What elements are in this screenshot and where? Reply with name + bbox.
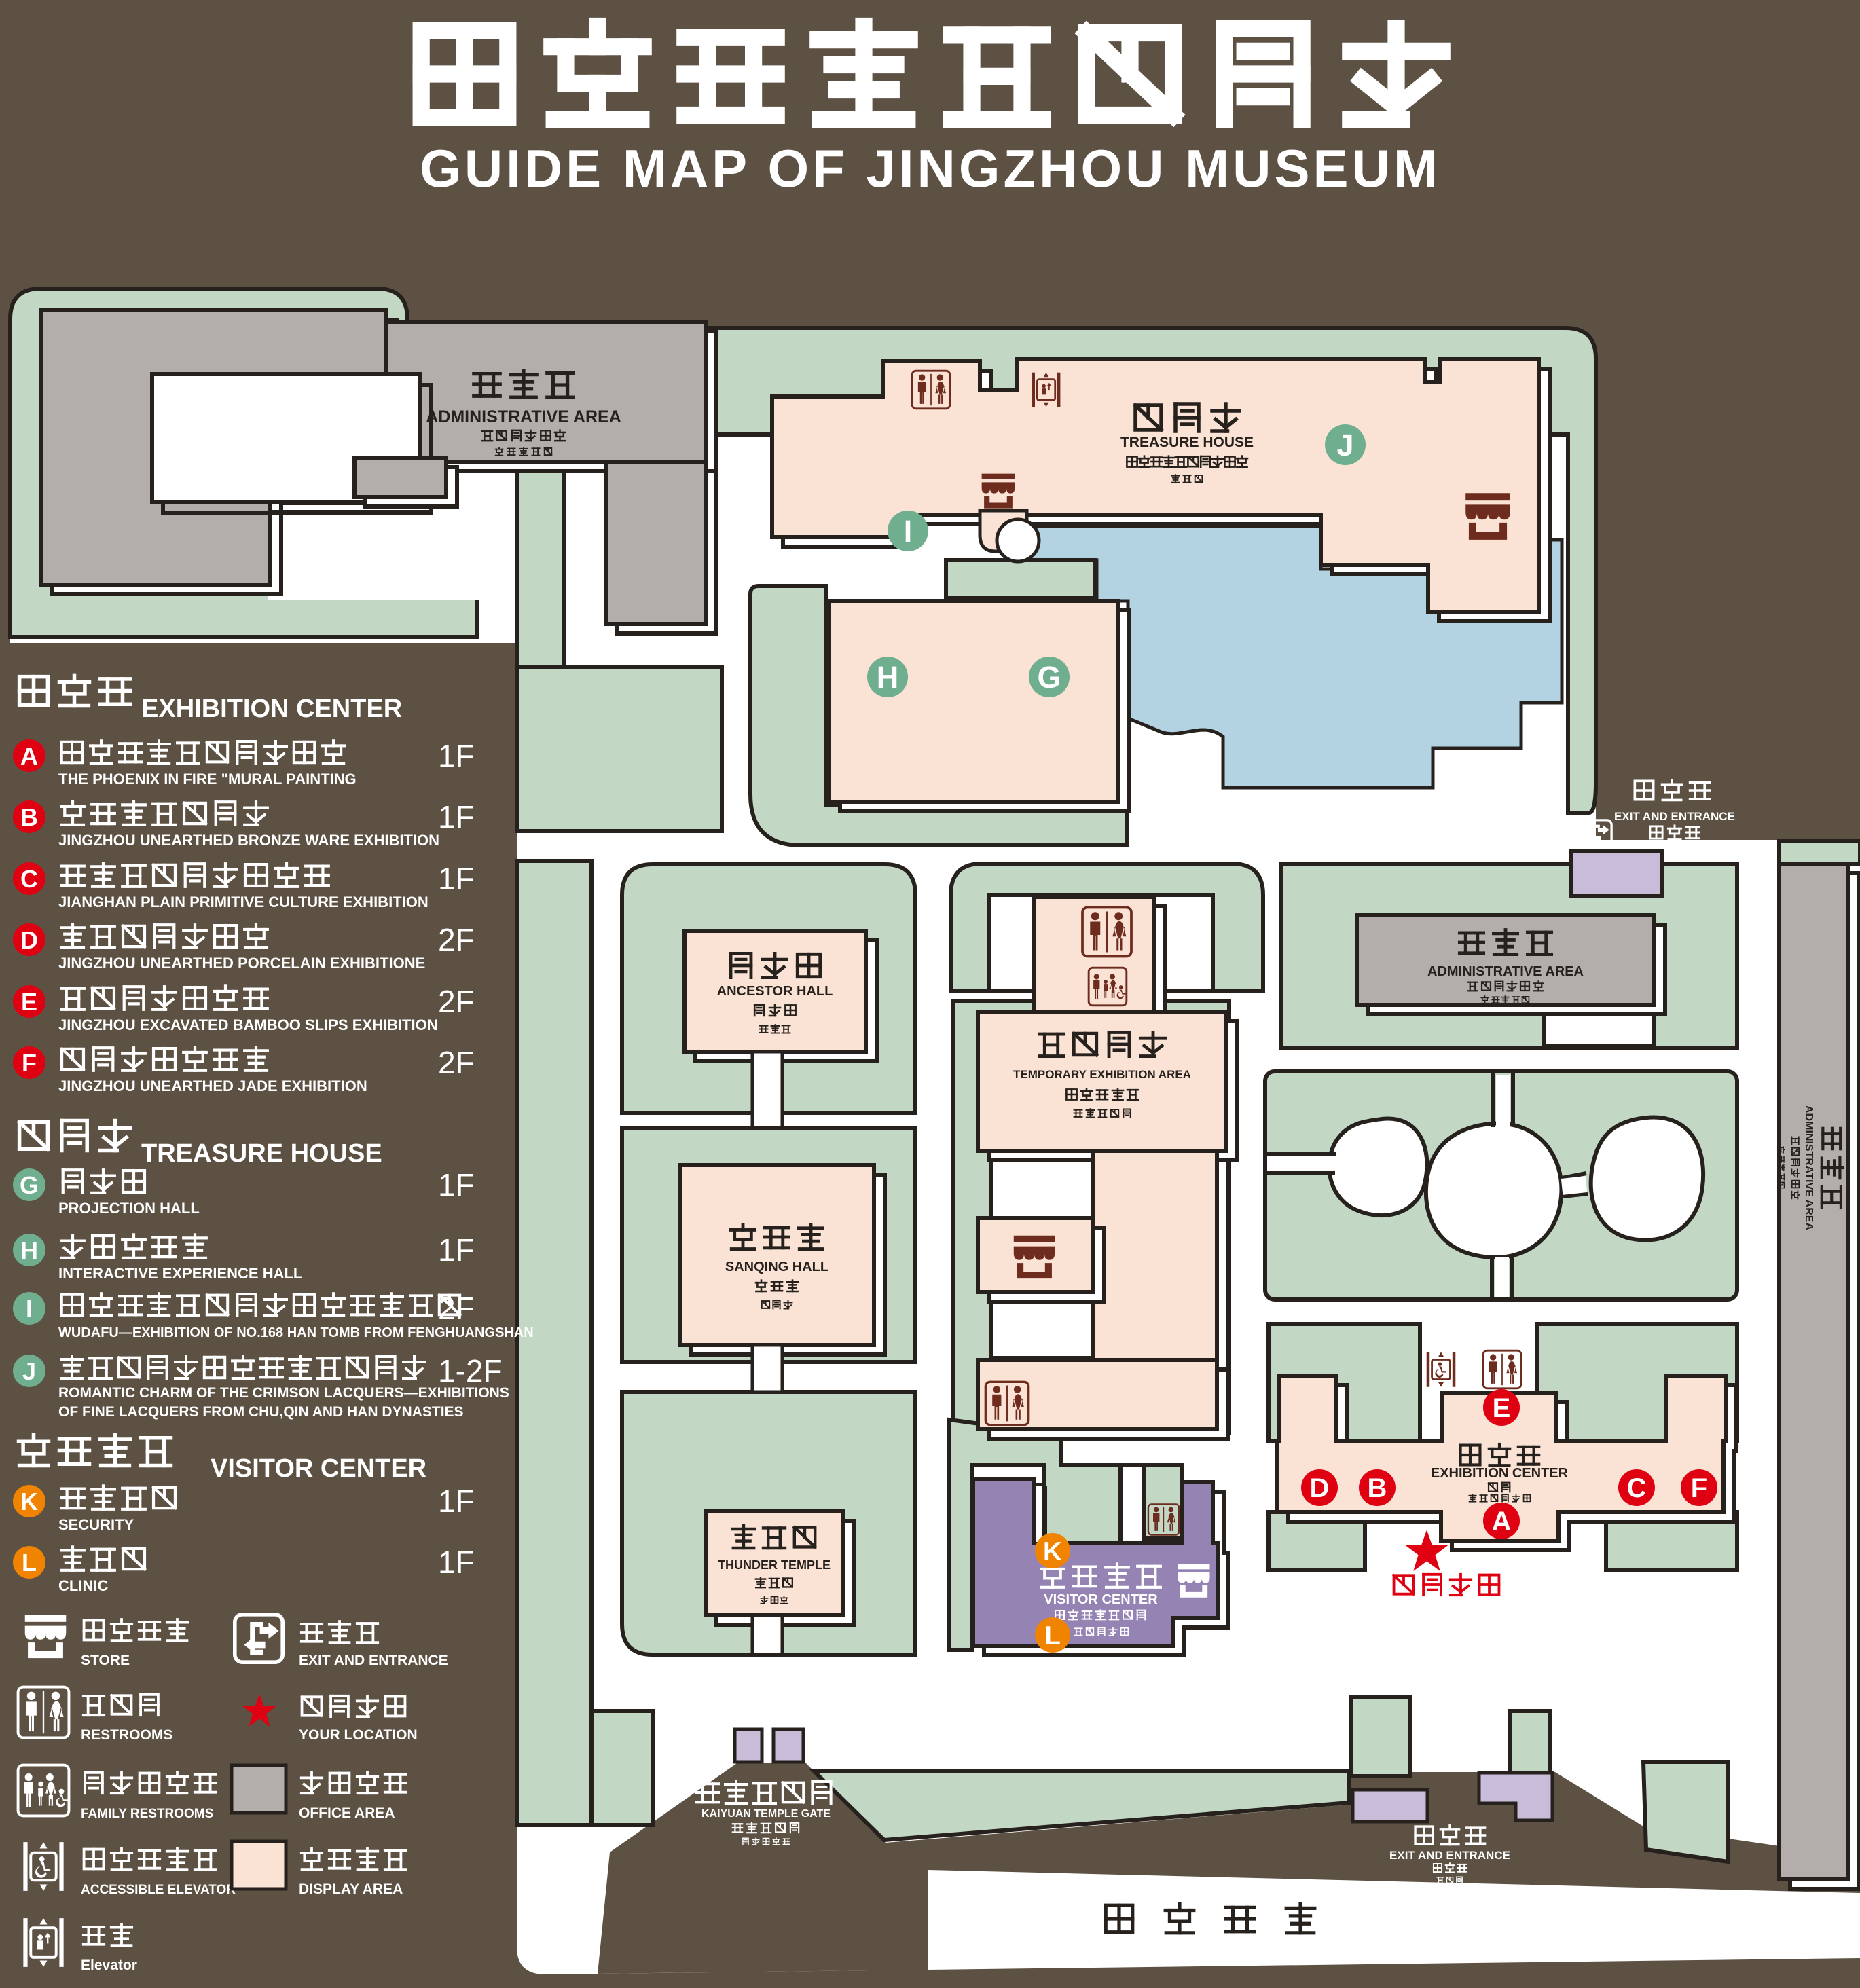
svg-text:2F: 2F <box>438 1291 475 1326</box>
svg-text:F: F <box>1691 1473 1707 1503</box>
svg-text:YOUR LOCATION: YOUR LOCATION <box>299 1727 418 1743</box>
svg-text:H: H <box>20 1236 38 1264</box>
svg-text:JINGZHOU EXCAVATED BAMBOO SLIP: JINGZHOU EXCAVATED BAMBOO SLIPS EXHIBITI… <box>58 1016 438 1033</box>
svg-text:1F: 1F <box>438 861 475 896</box>
svg-text:A: A <box>1492 1507 1512 1536</box>
svg-text:E: E <box>21 988 37 1016</box>
svg-text:JIANGHAN PLAIN PRIMITIVE CULTU: JIANGHAN PLAIN PRIMITIVE CULTURE EXHIBIT… <box>58 894 428 910</box>
svg-text:EXIT AND ENTRANCE: EXIT AND ENTRANCE <box>299 1653 448 1668</box>
svg-text:VISITOR CENTER: VISITOR CENTER <box>1044 1592 1158 1607</box>
svg-text:D: D <box>1310 1473 1330 1503</box>
svg-text:JINGZHOU UNEARTHED JADE EXHIBI: JINGZHOU UNEARTHED JADE EXHIBITION <box>58 1078 367 1094</box>
svg-text:OFFICE AREA: OFFICE AREA <box>299 1805 395 1821</box>
svg-text:ADMINISTRATIVE AREA: ADMINISTRATIVE AREA <box>1803 1105 1815 1230</box>
svg-text:B: B <box>1368 1473 1387 1503</box>
svg-text:OF FINE LACQUERS FROM CHU,QIN: OF FINE LACQUERS FROM CHU,QIN AND HAN DY… <box>58 1404 464 1420</box>
svg-text:J: J <box>1336 428 1353 462</box>
svg-text:ACCESSIBLE ELEVATOR: ACCESSIBLE ELEVATOR <box>81 1883 236 1897</box>
svg-text:SECURITY: SECURITY <box>58 1516 134 1533</box>
svg-text:THUNDER TEMPLE: THUNDER TEMPLE <box>718 1558 831 1572</box>
svg-text:B: B <box>20 803 38 831</box>
svg-text:G: G <box>1037 660 1061 695</box>
svg-text:EXIT AND ENTRANCE: EXIT AND ENTRANCE <box>1389 1849 1510 1862</box>
svg-text:CLINIC: CLINIC <box>58 1577 108 1594</box>
svg-text:JINGZHOU UNEARTHED PORCELAIN E: JINGZHOU UNEARTHED PORCELAIN EXHIBITIONE <box>58 955 425 972</box>
svg-text:1F: 1F <box>438 1484 475 1519</box>
svg-text:WUDAFU—EXHIBITION OF NO.168 HA: WUDAFU—EXHIBITION OF NO.168 HAN TOMB FRO… <box>58 1325 534 1340</box>
svg-text:2F: 2F <box>438 984 475 1019</box>
svg-text:1F: 1F <box>438 1232 475 1268</box>
svg-text:FAMILY RESTROOMS: FAMILY RESTROOMS <box>81 1807 213 1821</box>
svg-text:G: G <box>20 1171 39 1199</box>
svg-text:E: E <box>1493 1393 1511 1423</box>
svg-text:I: I <box>904 514 913 549</box>
svg-text:I: I <box>26 1295 33 1323</box>
svg-text:SANQING HALL: SANQING HALL <box>725 1259 828 1274</box>
svg-text:EXHIBITION CENTER: EXHIBITION CENTER <box>141 695 402 723</box>
svg-text:D: D <box>20 926 38 954</box>
svg-text:2F: 2F <box>438 922 475 957</box>
svg-text:C: C <box>20 865 38 893</box>
svg-text:L: L <box>1044 1621 1061 1651</box>
svg-text:1F: 1F <box>438 1167 475 1202</box>
svg-text:A: A <box>20 742 38 770</box>
svg-text:TREASURE HOUSE: TREASURE HOUSE <box>141 1139 382 1168</box>
svg-text:PROJECTION HALL: PROJECTION HALL <box>58 1200 200 1217</box>
svg-text:INTERACTIVE EXPERIENCE HALL: INTERACTIVE EXPERIENCE HALL <box>58 1265 302 1282</box>
svg-text:L: L <box>22 1549 37 1577</box>
svg-text:J: J <box>22 1357 36 1385</box>
svg-text:1F: 1F <box>438 1545 475 1580</box>
svg-text:ADMINISTRATIVE AREA: ADMINISTRATIVE AREA <box>1427 964 1584 979</box>
svg-text:2F: 2F <box>438 1045 475 1080</box>
svg-text:THE PHOENIX IN FIRE "MURAL PAI: THE PHOENIX IN FIRE "MURAL PAINTING <box>58 771 357 788</box>
svg-text:K: K <box>1043 1537 1062 1566</box>
svg-text:EXIT AND ENTRANCE: EXIT AND ENTRANCE <box>1614 810 1735 823</box>
svg-text:Elevator: Elevator <box>81 1957 137 1973</box>
svg-text:JINGZHOU UNEARTHED BRONZE WARE: JINGZHOU UNEARTHED BRONZE WARE EXHIBITIO… <box>58 832 439 849</box>
svg-text:C: C <box>1627 1473 1647 1503</box>
svg-text:GUIDE MAP OF JINGZHOU MUSEUM: GUIDE MAP OF JINGZHOU MUSEUM <box>420 139 1441 198</box>
svg-text:KAIYUAN TEMPLE GATE: KAIYUAN TEMPLE GATE <box>701 1808 831 1820</box>
svg-text:F: F <box>22 1049 37 1077</box>
svg-text:ADMINISTRATIVE AREA: ADMINISTRATIVE AREA <box>426 407 621 426</box>
svg-text:1-2F: 1-2F <box>438 1353 503 1388</box>
svg-text:ANCESTOR HALL: ANCESTOR HALL <box>717 984 833 999</box>
svg-text:STORE: STORE <box>81 1653 130 1668</box>
svg-text:DISPLAY AREA: DISPLAY AREA <box>299 1881 403 1897</box>
svg-text:K: K <box>20 1488 38 1515</box>
svg-text:1F: 1F <box>438 799 475 834</box>
svg-text:H: H <box>877 660 899 695</box>
svg-text:EXHIBITION CENTER: EXHIBITION CENTER <box>1431 1466 1569 1481</box>
svg-text:RESTROOMS: RESTROOMS <box>81 1727 172 1743</box>
svg-text:TREASURE HOUSE: TREASURE HOUSE <box>1120 435 1254 450</box>
svg-text:TEMPORARY EXHIBITION AREA: TEMPORARY EXHIBITION AREA <box>1013 1068 1191 1081</box>
svg-text:VISITOR CENTER: VISITOR CENTER <box>211 1454 426 1483</box>
svg-text:1F: 1F <box>438 738 475 773</box>
